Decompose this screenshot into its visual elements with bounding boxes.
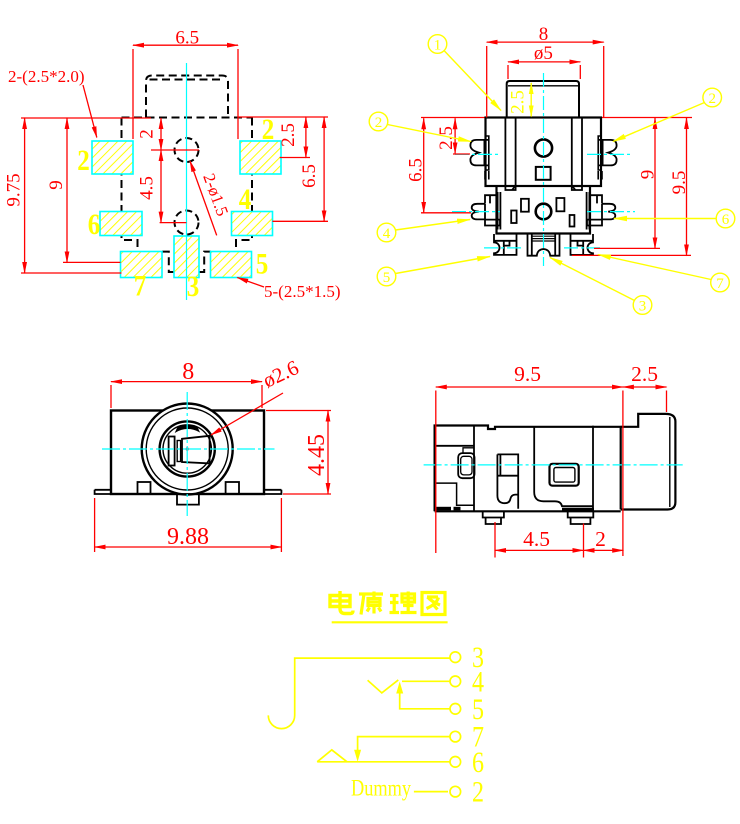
svg-text:4.5: 4.5 bbox=[137, 176, 158, 200]
svg-text:8: 8 bbox=[539, 24, 549, 45]
svg-text:4.5: 4.5 bbox=[523, 527, 550, 551]
svg-text:2: 2 bbox=[472, 776, 484, 809]
svg-text:6: 6 bbox=[722, 212, 730, 228]
svg-text:2-(2.5*2.0): 2-(2.5*2.0) bbox=[8, 67, 84, 86]
svg-text:9.88: 9.88 bbox=[167, 524, 209, 550]
svg-text:9.5: 9.5 bbox=[669, 171, 690, 195]
svg-text:7: 7 bbox=[134, 270, 147, 303]
svg-text:9.5: 9.5 bbox=[514, 362, 541, 386]
svg-text:5-(2.5*1.5): 5-(2.5*1.5) bbox=[264, 282, 340, 301]
svg-text:2.5: 2.5 bbox=[508, 90, 529, 114]
svg-text:5: 5 bbox=[383, 270, 391, 286]
svg-text:6.5: 6.5 bbox=[299, 164, 320, 188]
svg-text:5: 5 bbox=[256, 248, 269, 281]
svg-text:6.5: 6.5 bbox=[406, 158, 427, 182]
svg-text:4: 4 bbox=[239, 183, 252, 216]
svg-text:2: 2 bbox=[137, 129, 158, 139]
svg-text:2: 2 bbox=[708, 91, 716, 107]
svg-text:9.75: 9.75 bbox=[3, 173, 24, 206]
svg-text:3: 3 bbox=[639, 299, 647, 315]
svg-text:1: 1 bbox=[434, 38, 442, 54]
svg-text:2.5: 2.5 bbox=[631, 362, 658, 386]
svg-text:7: 7 bbox=[716, 276, 724, 292]
svg-text:6: 6 bbox=[472, 746, 484, 779]
svg-text:9: 9 bbox=[638, 170, 659, 180]
svg-text:2: 2 bbox=[262, 113, 275, 146]
svg-text:4: 4 bbox=[383, 226, 391, 242]
svg-text:2.5: 2.5 bbox=[278, 123, 299, 147]
svg-text:6.5: 6.5 bbox=[175, 28, 199, 49]
svg-text:Dummy: Dummy bbox=[351, 776, 411, 801]
svg-text:2: 2 bbox=[77, 144, 90, 177]
svg-text:ø5: ø5 bbox=[534, 43, 553, 64]
svg-text:9: 9 bbox=[46, 180, 67, 190]
svg-text:6: 6 bbox=[88, 208, 101, 241]
svg-text:4.45: 4.45 bbox=[304, 434, 330, 476]
svg-text:2: 2 bbox=[375, 115, 383, 131]
svg-text:2: 2 bbox=[595, 527, 606, 551]
svg-text:3: 3 bbox=[187, 270, 200, 303]
svg-text:8: 8 bbox=[182, 359, 194, 385]
